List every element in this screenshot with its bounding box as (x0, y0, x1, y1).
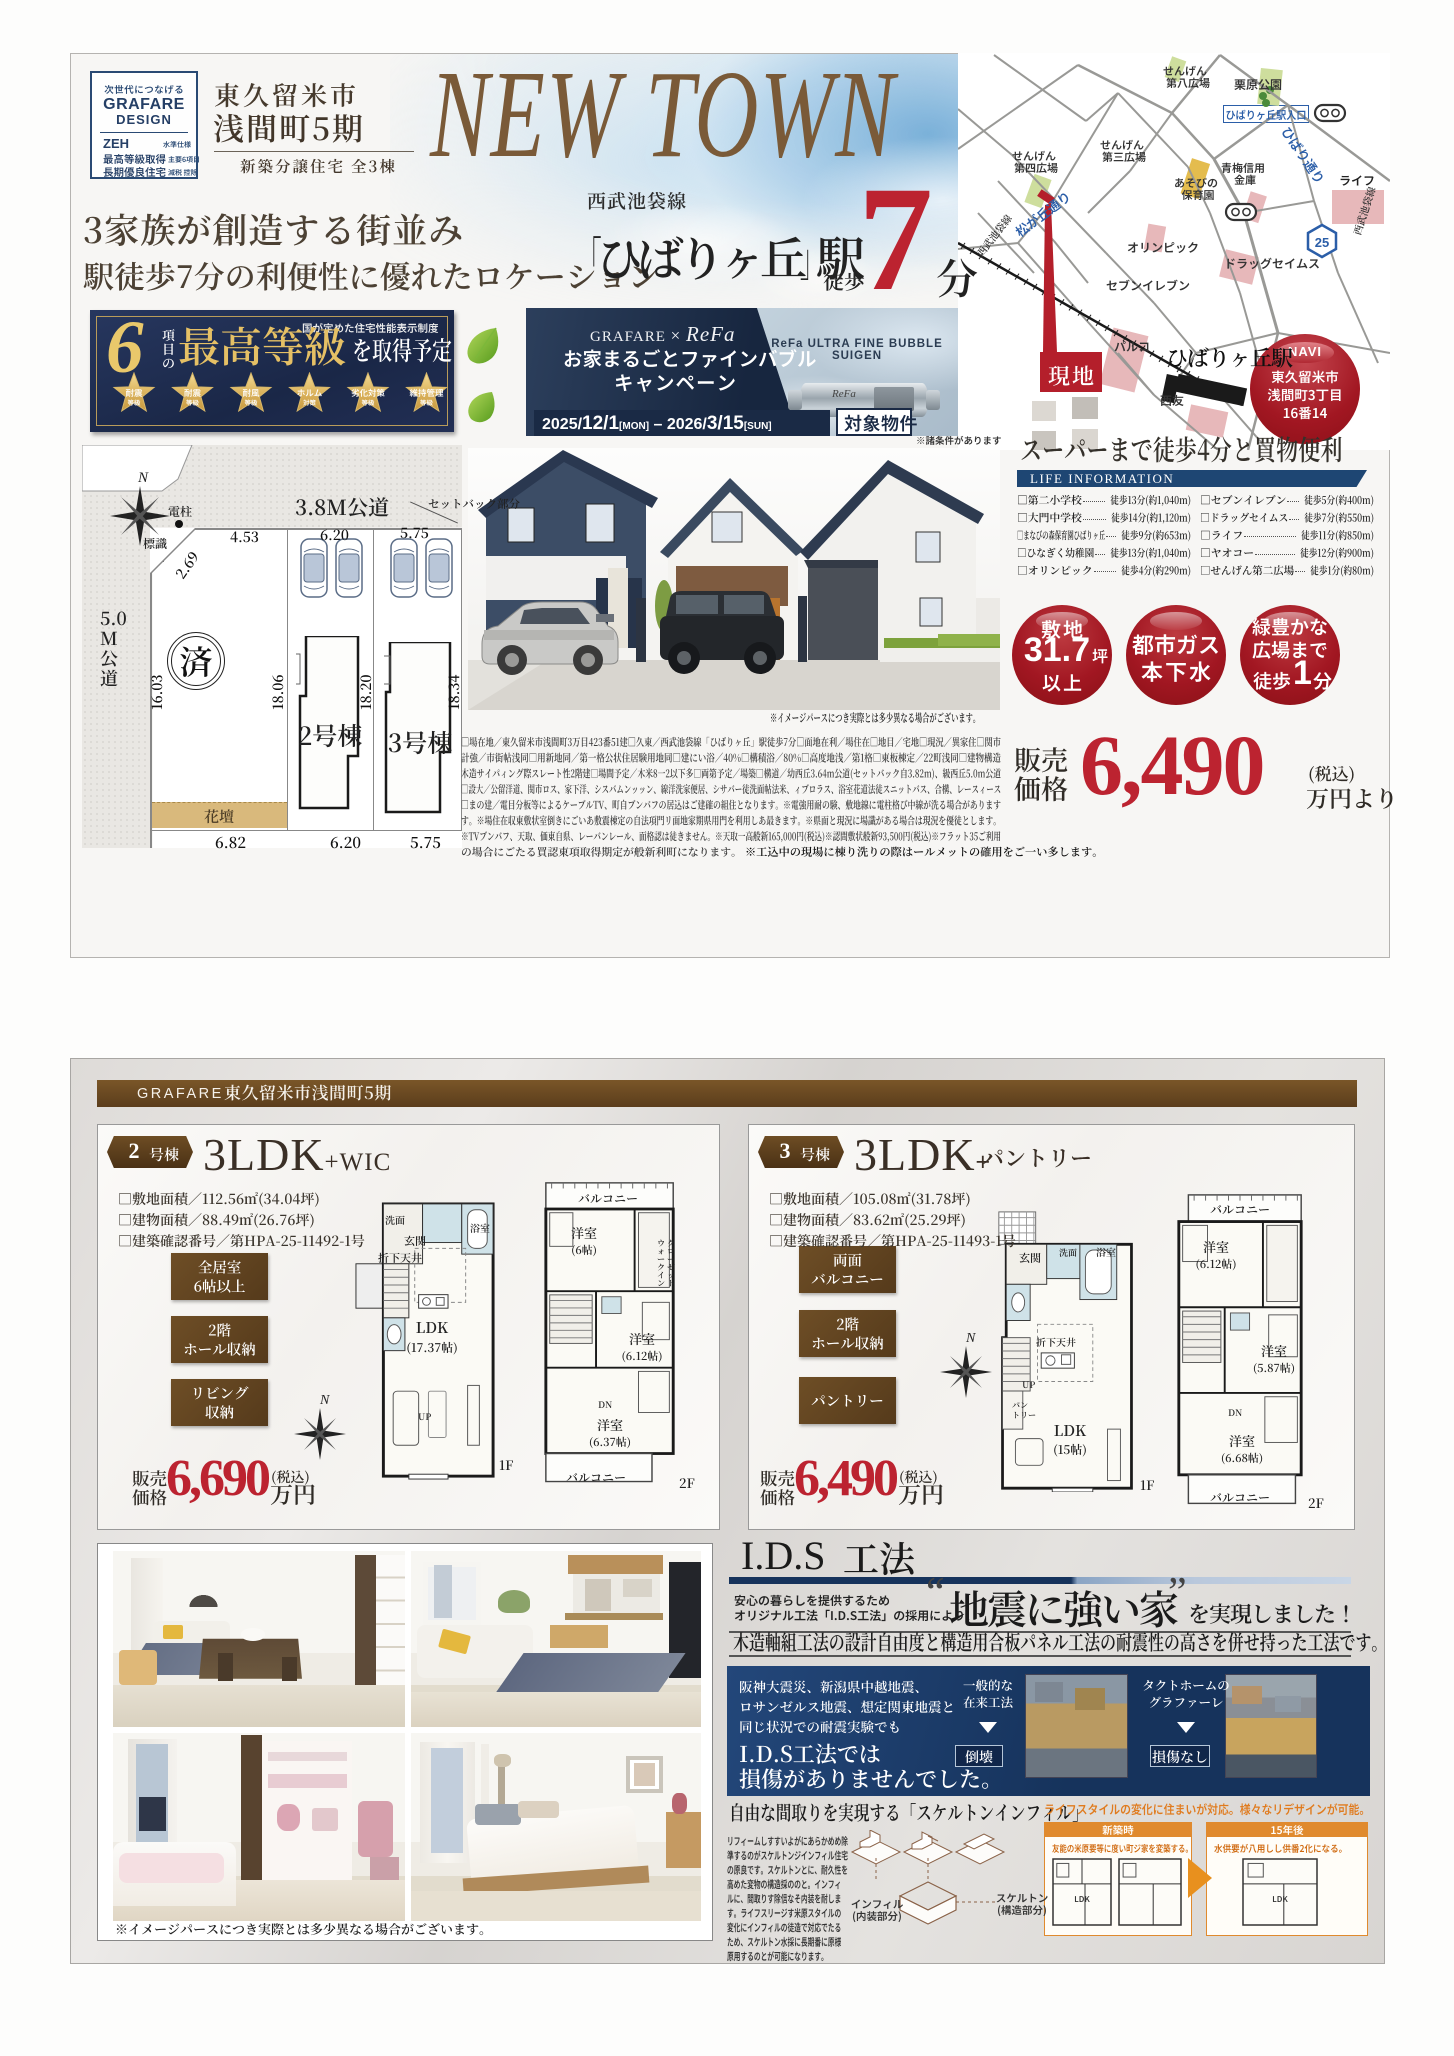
svg-text:N: N (137, 470, 149, 486)
svg-text:N: N (965, 1331, 976, 1346)
svg-text:25: 25 (1315, 235, 1329, 250)
svg-text:N: N (319, 1393, 330, 1408)
